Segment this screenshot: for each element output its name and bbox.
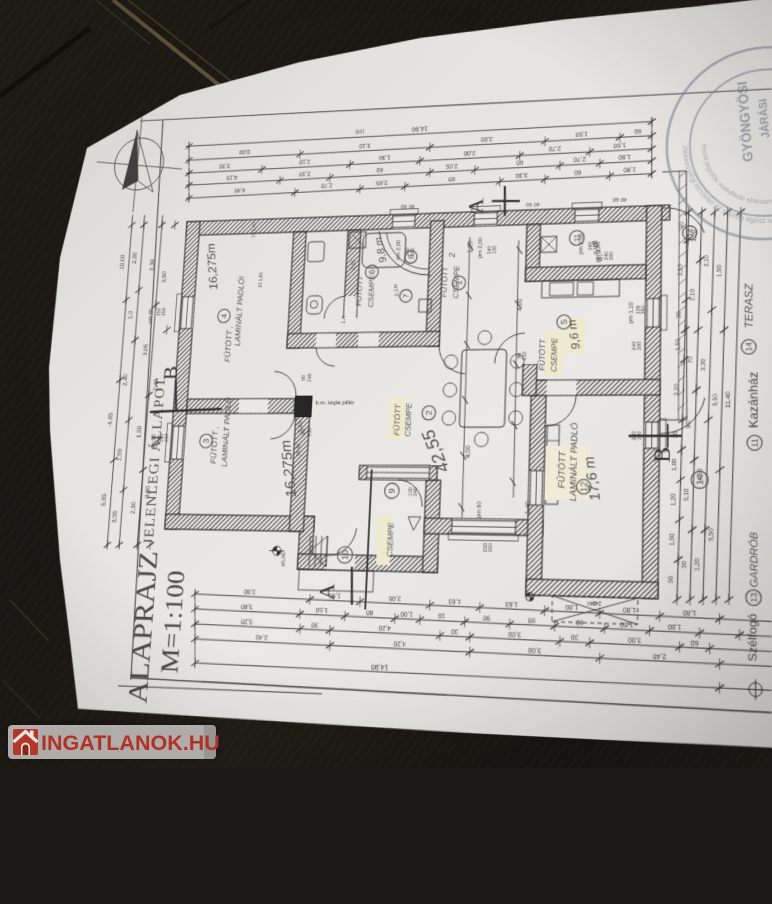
svg-text:INGATLANOK.HU: INGATLANOK.HU — [41, 731, 220, 755]
